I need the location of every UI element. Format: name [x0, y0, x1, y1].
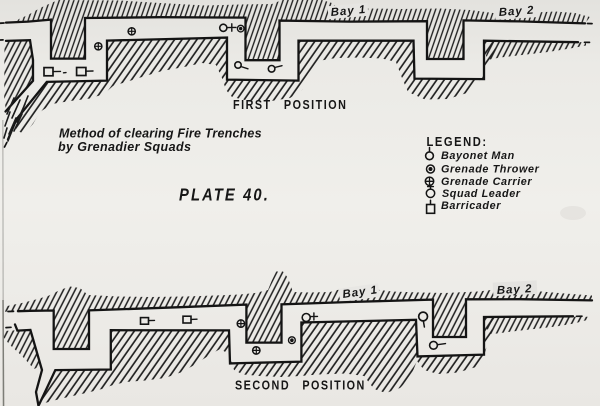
- svg-text:Method of clearing Fire Trench: Method of clearing Fire Trenches: [59, 127, 262, 141]
- svg-text:by Grenadier Squads: by Grenadier Squads: [58, 140, 191, 154]
- svg-text:FIRST POSITION: FIRST POSITION: [233, 97, 347, 112]
- svg-text:Bay 2: Bay 2: [497, 283, 533, 297]
- svg-text:Barricader: Barricader: [441, 200, 501, 212]
- svg-text:SECOND POSITION: SECOND POSITION: [235, 377, 366, 392]
- svg-text:Grenade Thrower: Grenade Thrower: [441, 163, 540, 175]
- svg-text:Bay 2: Bay 2: [498, 5, 534, 19]
- svg-text:Grenade Carrier: Grenade Carrier: [441, 176, 532, 188]
- svg-text:LEGEND:: LEGEND:: [427, 134, 488, 149]
- svg-text:Bayonet Man: Bayonet Man: [441, 150, 515, 162]
- svg-text:Squad Leader: Squad Leader: [442, 188, 521, 200]
- svg-text:PLATE 40.: PLATE 40.: [179, 185, 270, 205]
